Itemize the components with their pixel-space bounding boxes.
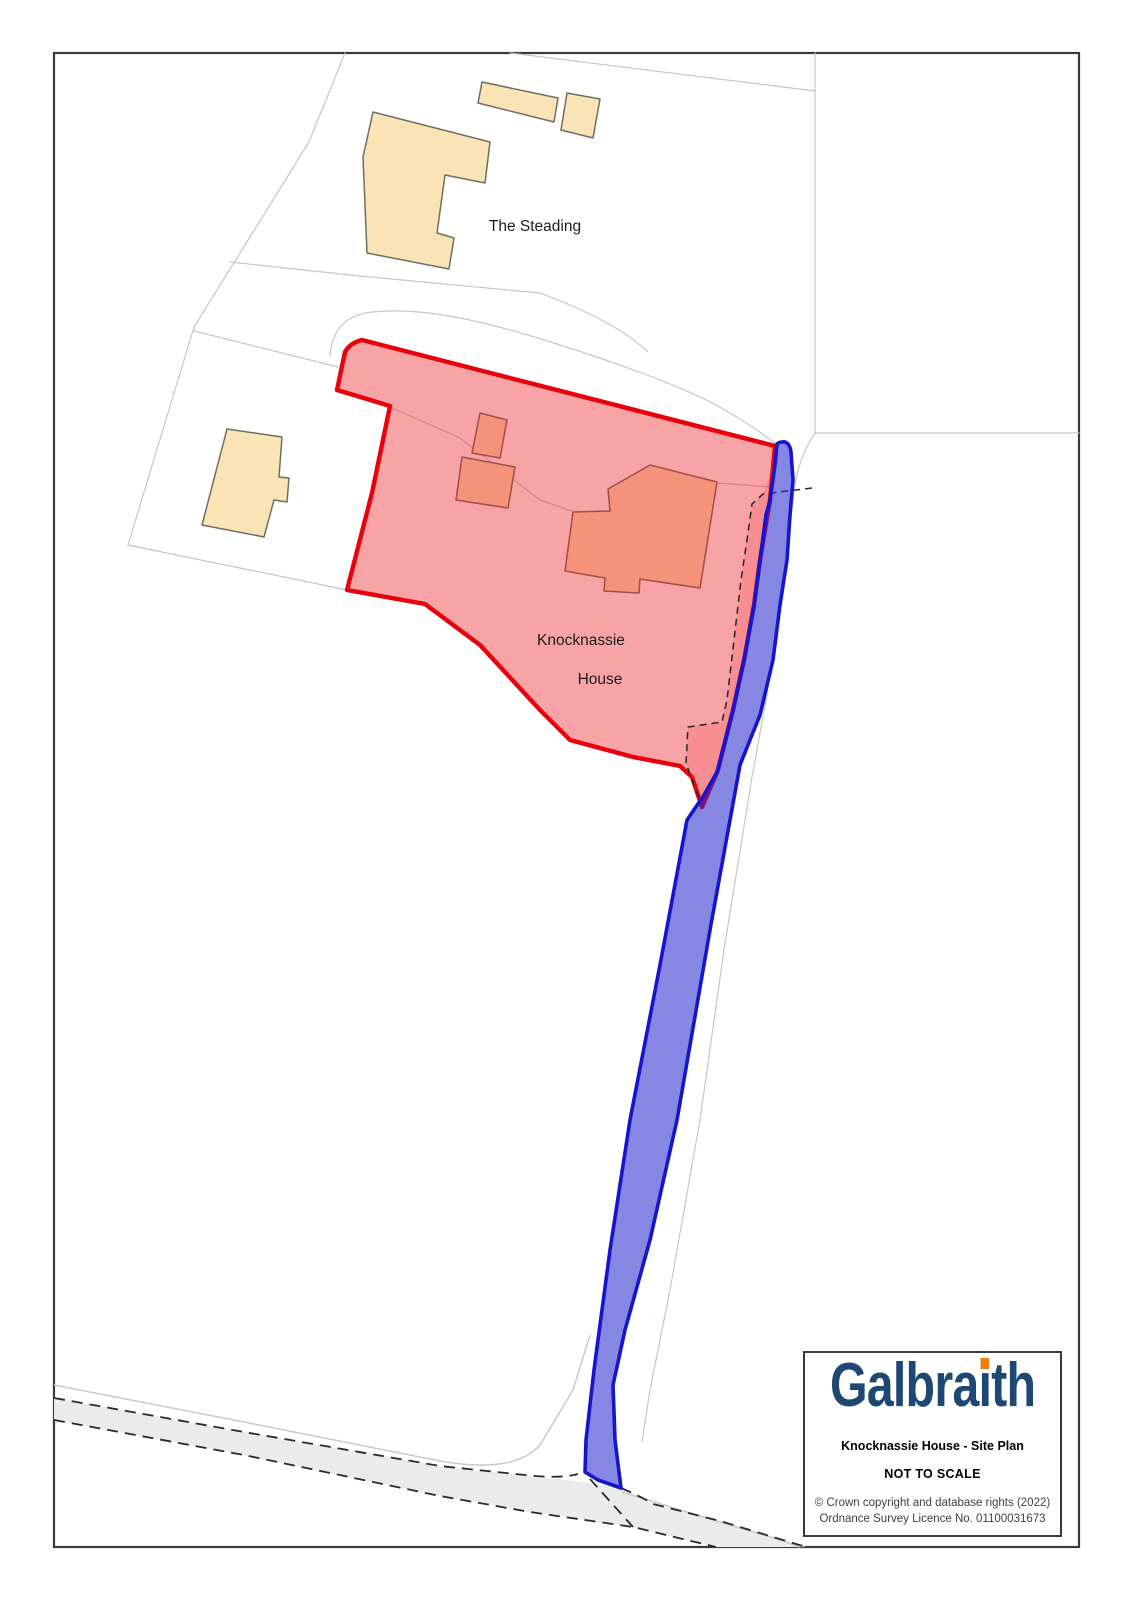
info-copyright-2: Ordnance Survey Licence No. 01100031673 xyxy=(805,1511,1060,1527)
logo-part-1: Galbra xyxy=(830,1351,979,1420)
map-frame xyxy=(54,53,1079,1547)
label-knocknassie: Knocknassie xyxy=(537,632,625,649)
galbraith-logo: Galbraıth xyxy=(805,1354,1060,1418)
label-the-steading: The Steading xyxy=(489,218,581,235)
logo-part-2: th xyxy=(991,1351,1035,1420)
info-copyright-1: © Crown copyright and database rights (2… xyxy=(805,1495,1060,1511)
info-copyright: © Crown copyright and database rights (2… xyxy=(805,1495,1060,1527)
logo-orange-dot xyxy=(981,1358,990,1369)
info-scale-note: NOT TO SCALE xyxy=(805,1467,1060,1481)
logo-letter-i: ı xyxy=(978,1355,991,1417)
info-title: Knocknassie House - Site Plan xyxy=(805,1439,1060,1453)
info-box: Galbraıth Knocknassie House - Site Plan … xyxy=(803,1351,1062,1537)
galbraith-logo-text: Galbraıth xyxy=(830,1355,1035,1417)
site-plan-page: The Steading Knocknassie House Galbraıth… xyxy=(0,0,1131,1600)
building-steading-barn-2 xyxy=(561,93,600,138)
label-house: House xyxy=(578,671,623,688)
